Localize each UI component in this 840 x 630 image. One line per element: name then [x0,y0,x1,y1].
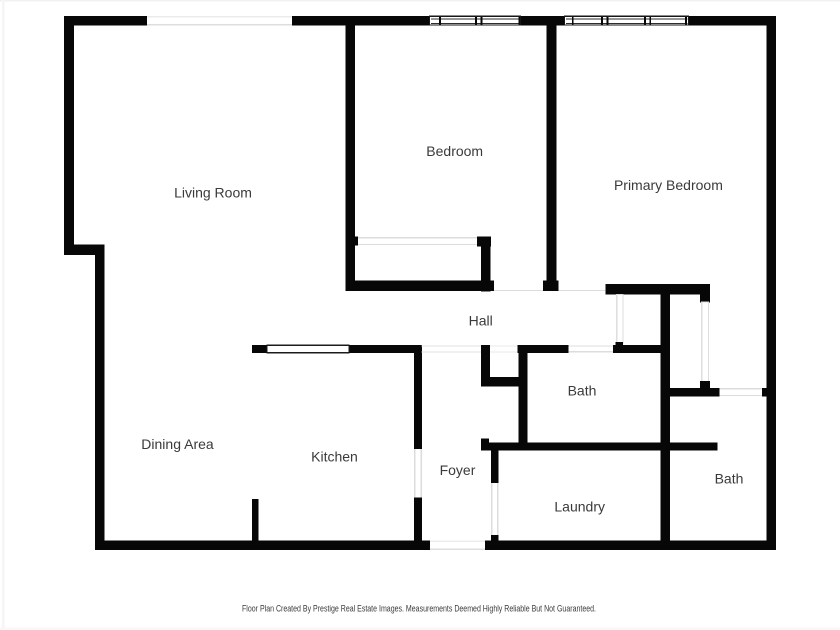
svg-text:Kitchen: Kitchen [311,449,358,465]
svg-text:Living Room: Living Room [174,185,252,201]
svg-text:Bedroom: Bedroom [426,143,483,159]
svg-text:Dining Area: Dining Area [141,436,214,452]
svg-text:Bath: Bath [568,382,597,398]
svg-text:Hall: Hall [469,312,493,328]
svg-text:Primary Bedroom: Primary Bedroom [614,177,723,193]
svg-text:Bath: Bath [715,470,744,486]
svg-text:Laundry: Laundry [554,499,605,515]
svg-text:Foyer: Foyer [440,462,476,478]
svg-text:Floor Plan Created By Prestige: Floor Plan Created By Prestige Real Esta… [242,604,596,615]
